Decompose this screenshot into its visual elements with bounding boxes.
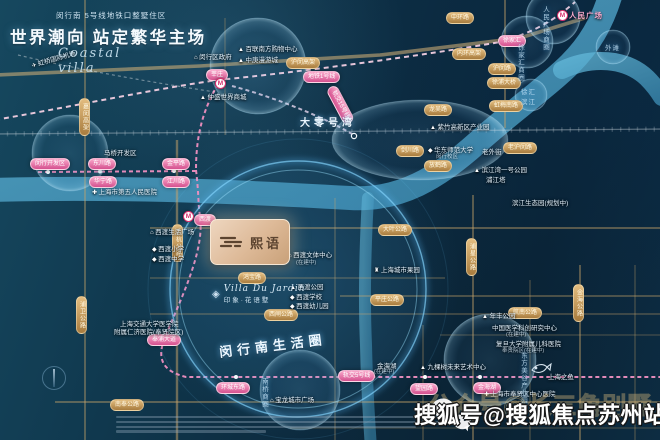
map-canvas: 莘庄闵行开发区东川路金平路华宁路江川路西渡奉浦大道环城东路望园路金海湖徐家汇地铁… (0, 0, 660, 440)
pag-icon: ♜ (374, 268, 379, 274)
place-label: ▲年丰公园 (482, 310, 515, 320)
place-label: ✚上海市第五人民医院 (92, 186, 157, 196)
place-label: ▲滨江湾一号公园 (474, 164, 527, 174)
road-label: 内环高架 (452, 48, 486, 60)
road-label: 南奉公路 (110, 399, 144, 411)
station-label: 环城东路 (216, 382, 250, 394)
bld-icon: ⌂ (270, 398, 274, 404)
road-label: 大叶公路 (378, 224, 412, 236)
big-label: 大零号湾 (300, 114, 356, 129)
place-label: ▲百联南方购物中心 (238, 43, 297, 53)
road-label: 平庄公路 (370, 294, 404, 306)
page-title: 世界潮向 站定繁华主场 (10, 24, 207, 48)
tri-icon: ▲ (238, 47, 244, 53)
metro-station-icon: M (215, 78, 226, 89)
sch-icon: ◆ (428, 148, 433, 154)
place-label: ▲九棵树未来艺术中心 (420, 361, 486, 371)
road-label: 浦星公路 (466, 238, 477, 276)
place-label: 附属仁济医院(奉贤院区) (114, 326, 183, 336)
road-label: 龙吴路 (424, 104, 452, 116)
place-label: ⌂宝龙城市广场 (270, 394, 314, 404)
place-label: ⌂闵行区政府 (194, 51, 232, 61)
place-label: ⌂西渡生活广场 (150, 226, 194, 236)
zone-label: 外滩 (605, 42, 620, 52)
place-label: 闵行校区 (436, 152, 458, 160)
place-label: ▲中庚漫游城 (238, 54, 278, 64)
place-label: (在建中) (506, 330, 526, 338)
place-label: 人民广场 (569, 10, 603, 21)
pln-icon: ✈ (31, 62, 37, 69)
compass-icon (42, 366, 66, 390)
road-label: 沪闵高架 (286, 57, 320, 69)
disclaimer-block (116, 416, 456, 435)
branding-name: 印象·花语墅 (224, 294, 306, 304)
hos-icon: ✚ (92, 190, 97, 196)
tri-icon: ▲ (200, 95, 206, 101)
road-label: 老沪闵路 (503, 142, 537, 154)
station-label: 地铁1号线 (303, 71, 340, 83)
tri-icon: ▲ (474, 168, 480, 174)
project-logo-icon (218, 234, 244, 250)
station-label: 闵行开发区 (30, 158, 70, 170)
station-label: 江川路 (162, 176, 190, 188)
road-label: 中环路 (446, 12, 474, 24)
bld-icon: ⌂ (194, 55, 198, 61)
road-label: 浦卫公路 (76, 296, 87, 334)
place-label: 上海之鱼 (548, 371, 574, 381)
station-label: 东川路 (88, 158, 116, 170)
branding-script: Villa Du Jardin (224, 284, 306, 294)
road-label: 鸿宝路 (238, 272, 266, 284)
tri-icon: ▲ (420, 365, 426, 371)
project-logo-text: 熙语 (250, 233, 282, 252)
bld-icon: ⌂ (150, 230, 154, 236)
tri-icon: ▲ (430, 125, 436, 131)
title-script: Coastal villa (58, 46, 121, 76)
subtitle-text: 闵行南 5号线地铁口整墅住区 (56, 10, 166, 21)
place-label: 滨江生态园(规划中) (512, 197, 568, 207)
watermark-text: 搜狐号@搜狐焦点苏州站 (414, 398, 660, 430)
project-card: 熙语 (210, 219, 290, 265)
zone-label: 徐汇滨江 (521, 86, 537, 106)
station-label: 金平路 (162, 158, 190, 170)
place-label: (在建中) (374, 367, 394, 375)
road-label: 西闸公路 (264, 309, 298, 321)
station-label: 轨交5号线 (338, 370, 375, 382)
metro-station-icon: M (183, 211, 194, 222)
road-label: 嘉闵高架 (79, 98, 90, 136)
tri-icon: ▲ (482, 314, 488, 320)
road-label: 金海公路 (573, 284, 584, 322)
zone-label: 南桥商圈 (257, 374, 270, 412)
project-branding: ◈ Villa Du Jardin 印象·花语墅 (212, 284, 306, 304)
flower-icon: ◈ (212, 289, 220, 300)
place-label: ♜上海城市果园 (374, 264, 420, 274)
place-label: 浦江塔 (486, 174, 506, 184)
zone-label: 徐家汇商圈 (513, 40, 526, 86)
zone-label: 人民广场商圈 (538, 2, 551, 55)
place-label: ▲紫竹高新区产业园 (430, 121, 489, 131)
road-label: 虹梅南路 (489, 100, 523, 112)
place-label: ▲仲盛世界商城 (200, 91, 246, 101)
place-label: 马桥开发区 (104, 147, 137, 157)
metro-station-icon: M (557, 10, 568, 21)
tri-icon: ▲ (238, 58, 244, 64)
big-label: 闵行南生活圈 (218, 329, 328, 361)
place-label: (在建中) (296, 258, 316, 266)
road-label: 剑川路 (396, 145, 424, 157)
place-label: ◆西渡小学 (152, 243, 184, 253)
sch-icon: ◆ (290, 304, 295, 310)
sch-icon: ◆ (152, 257, 157, 263)
road-label: 放鹤路 (424, 160, 452, 172)
road-label: 沪闵路 (488, 63, 516, 75)
place-label: 老外街 (482, 146, 502, 156)
place-label: ◆西渡中学 (152, 253, 184, 263)
